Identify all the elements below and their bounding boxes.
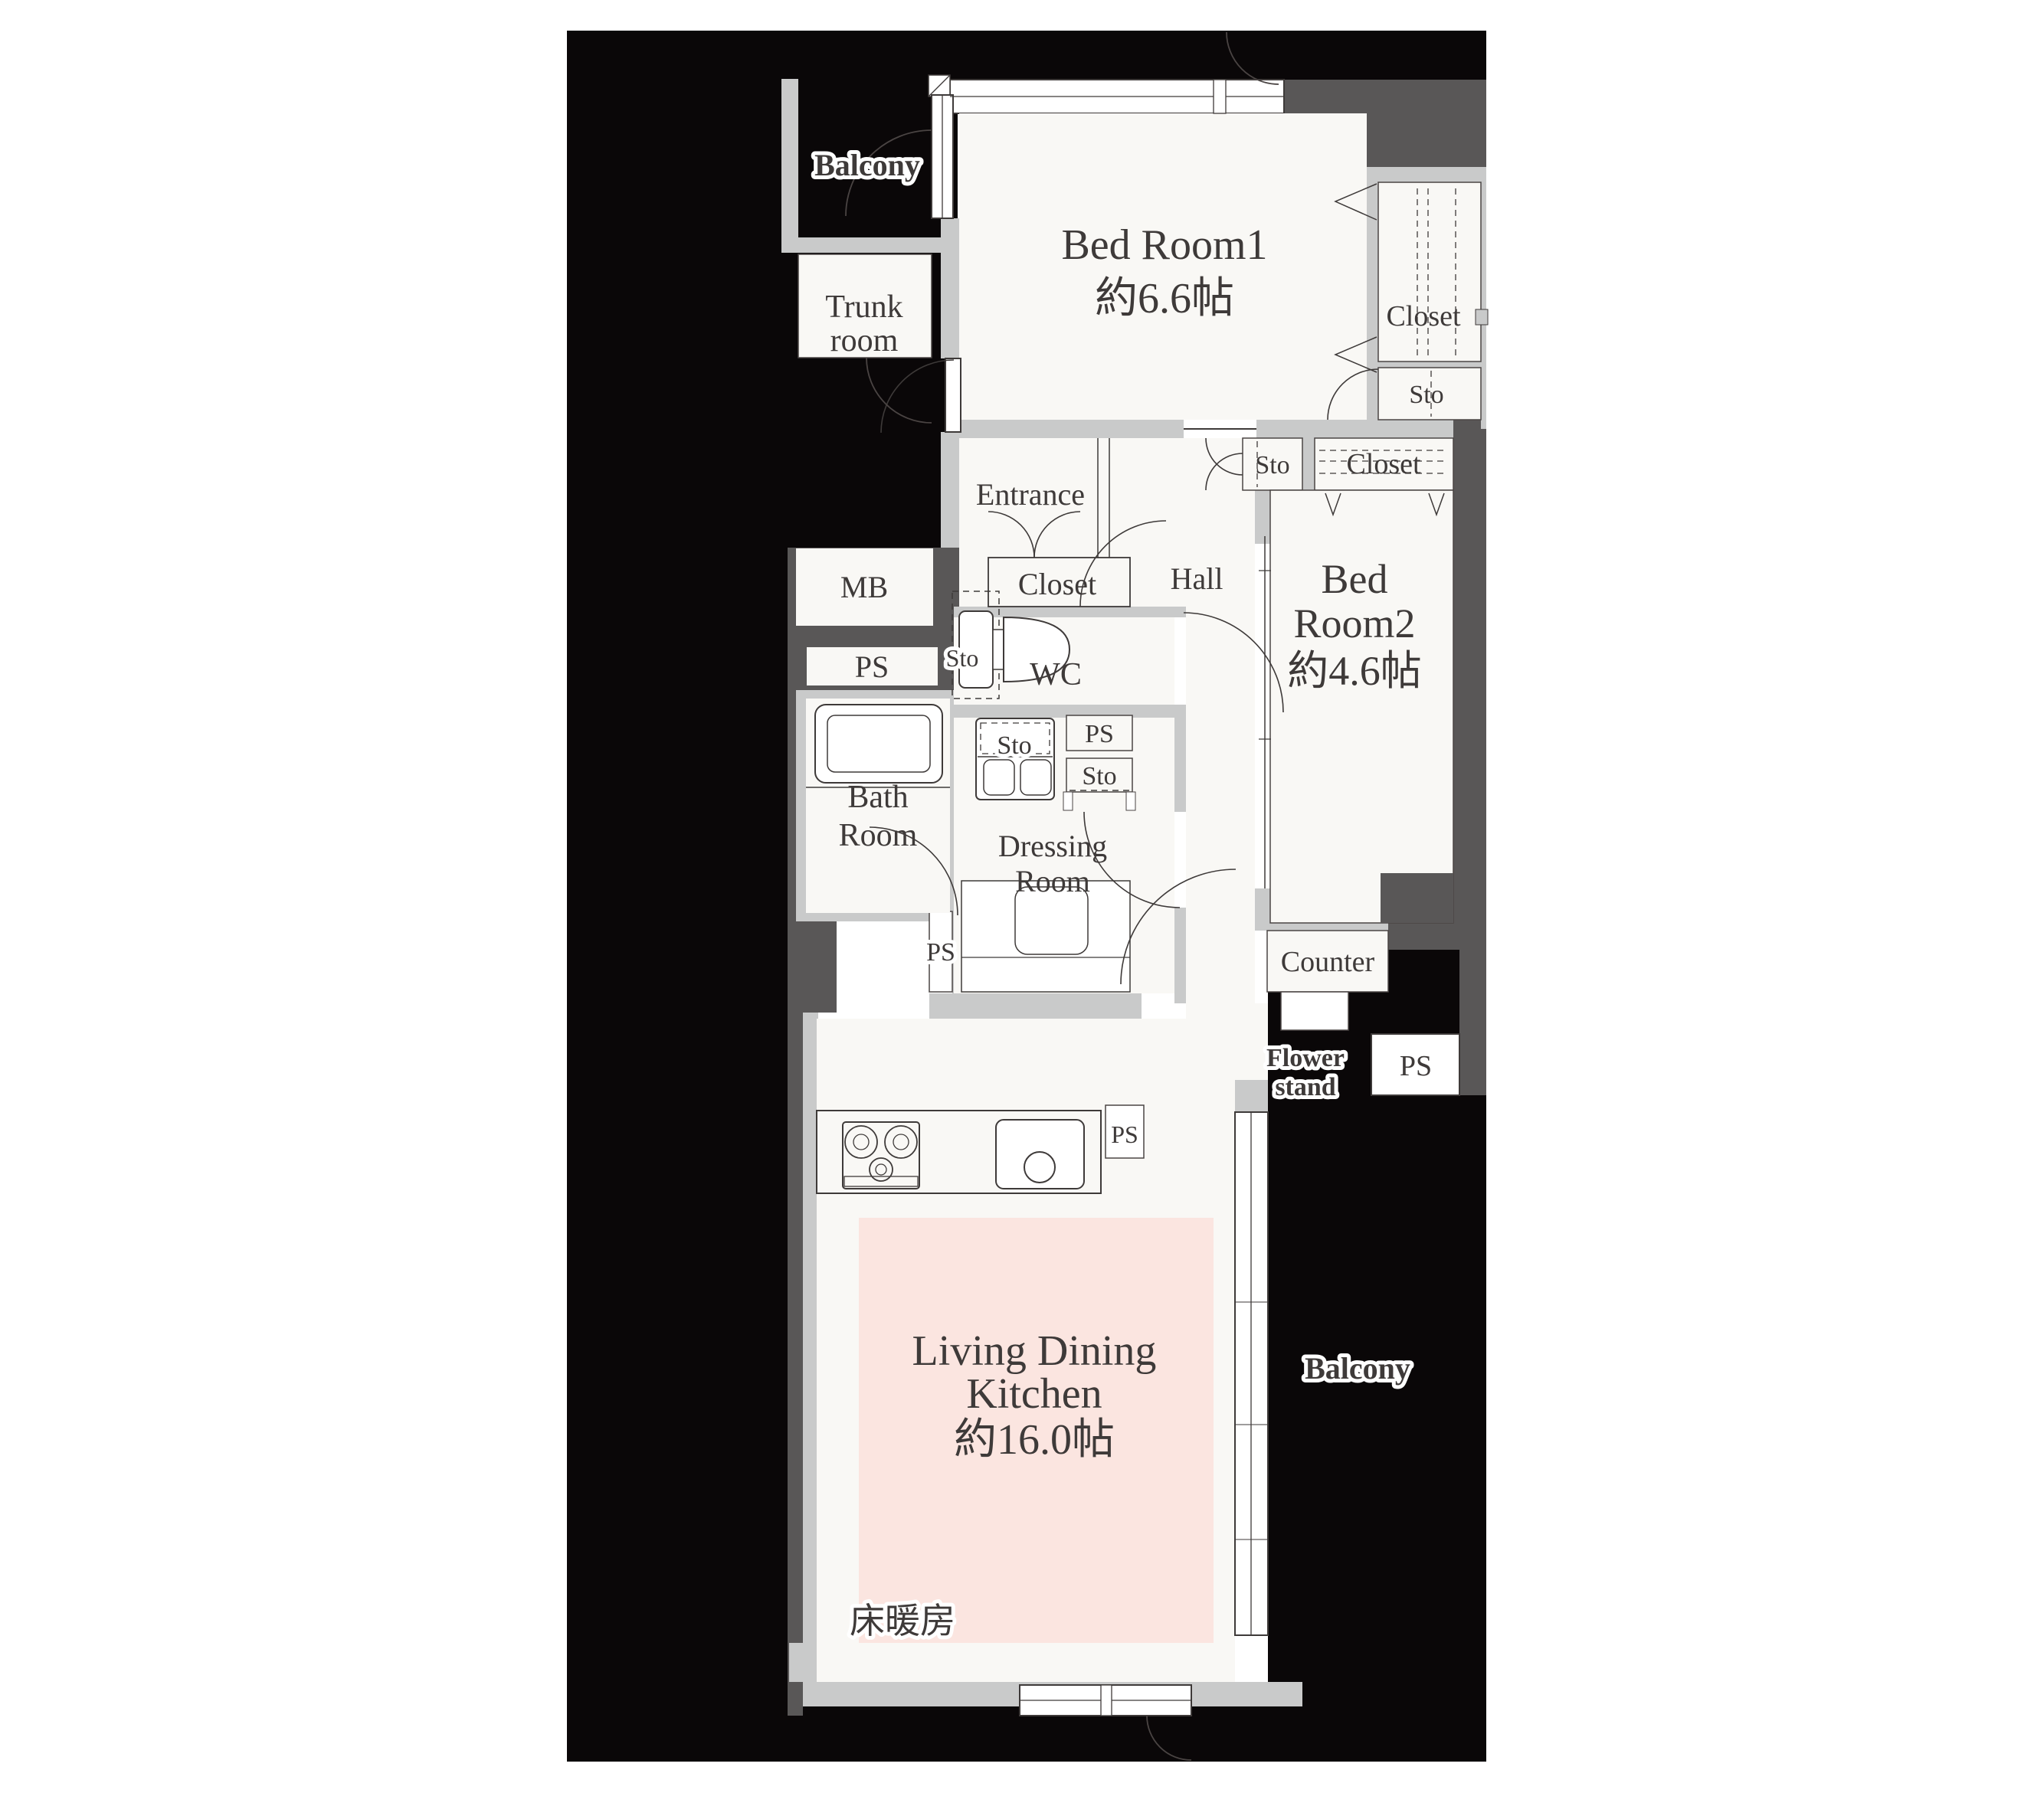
toilet-seat-hinge <box>993 630 1004 669</box>
ps-left-label: PS <box>855 649 889 684</box>
wall-segment <box>1453 420 1486 873</box>
bedroom2-label: Bed <box>1322 556 1388 602</box>
wall-segment <box>1459 950 1486 1095</box>
wall-segment <box>948 420 1184 438</box>
ldk-label: Living Dining <box>912 1327 1157 1375</box>
bedroom2-label: Room2 <box>1293 600 1415 646</box>
closet1-rod-tab <box>1476 309 1488 325</box>
mb-label: MB <box>840 570 888 604</box>
sto-bedroom1-label: Sto <box>1409 381 1443 409</box>
wall-segment <box>1367 362 1481 368</box>
sto-hall-label: Sto <box>1255 451 1289 479</box>
wall-segment <box>1263 923 1388 931</box>
wall-segment <box>788 1013 803 1716</box>
wall-segment <box>1235 1080 1268 1112</box>
floor-plan: Balcony Trunk room Bed Room1 約6.6帖 Close… <box>0 0 2044 1793</box>
black-left-column <box>567 31 789 1762</box>
bathtub <box>815 705 942 783</box>
trunk-room-label: room <box>830 323 899 358</box>
floor-plan-svg: Balcony Trunk room Bed Room1 約6.6帖 Close… <box>0 0 2044 1793</box>
wall-segment <box>1174 908 1186 1003</box>
counter-label: Counter <box>1281 946 1375 978</box>
bedroom1-size-label: 約6.6帖 <box>1095 275 1234 322</box>
ps-bottom-label: PS <box>926 938 955 967</box>
sto-dressing-label: Sto <box>1082 762 1116 790</box>
flower-stand-shelf <box>1281 992 1348 1030</box>
wall-segment <box>789 1643 818 1682</box>
flower-stand-label: stand <box>1275 1073 1335 1101</box>
hall-label: Hall <box>1171 561 1223 596</box>
wall-segment <box>781 79 798 253</box>
door-tick <box>1063 792 1073 810</box>
wall-segment <box>1302 438 1315 490</box>
balcony-top-label: Balcony <box>814 148 920 182</box>
window-mullion <box>1214 80 1226 113</box>
sto-washer-label: Sto <box>997 731 1031 760</box>
balcony-bottom-label: Balcony <box>1305 1351 1410 1386</box>
window-mullion <box>1101 1685 1112 1716</box>
closet-bedroom1-label: Closet <box>1386 300 1461 332</box>
flower-stand-label: Flower <box>1266 1044 1345 1072</box>
black-top-band <box>789 31 1486 80</box>
closet-entrance-label: Closet <box>1018 567 1096 601</box>
ps-dressing-label: PS <box>1085 720 1114 748</box>
wall-segment <box>929 993 1142 1019</box>
bathroom-label: Room <box>839 818 918 853</box>
wall-segment <box>1481 167 1486 429</box>
floor-heating-label: 床暖房 <box>850 1602 955 1641</box>
closet-bedroom1-floor <box>1378 182 1481 362</box>
black-right-edge <box>1459 1095 1486 1762</box>
entrance-label: Entrance <box>976 477 1085 512</box>
hall-floor <box>1186 607 1255 1003</box>
door-tick <box>1126 792 1135 810</box>
bedroom2-floor <box>1270 490 1453 923</box>
sink-drain <box>1024 1152 1055 1183</box>
dressing-room-label: Dressing <box>998 829 1107 863</box>
bathroom-label: Bath <box>847 780 908 815</box>
closet-bedroom2-label: Closet <box>1346 448 1421 480</box>
sto-wc-label: Sto <box>946 644 979 672</box>
ldk-label: Kitchen <box>966 1370 1102 1418</box>
dressing-room-label: Room <box>1015 864 1090 898</box>
wall-segment <box>941 432 959 548</box>
bedroom2-size-label: 約4.6帖 <box>1287 648 1422 694</box>
wall-segment <box>941 218 959 358</box>
wall-segment <box>788 921 837 1013</box>
wall-segment <box>1255 490 1270 544</box>
bedroom1-label: Bed Room1 <box>1061 221 1267 269</box>
ldk-size-label: 約16.0帖 <box>954 1416 1115 1464</box>
front-door-leaf <box>945 358 961 432</box>
ps-kitchen-label: PS <box>1111 1121 1138 1148</box>
trunk-room-label: Trunk <box>825 290 902 325</box>
wc-label: WC <box>1030 657 1082 692</box>
wall-segment <box>1256 420 1453 438</box>
wall-notch <box>1381 873 1453 923</box>
ps-balcony-label: PS <box>1400 1050 1432 1082</box>
